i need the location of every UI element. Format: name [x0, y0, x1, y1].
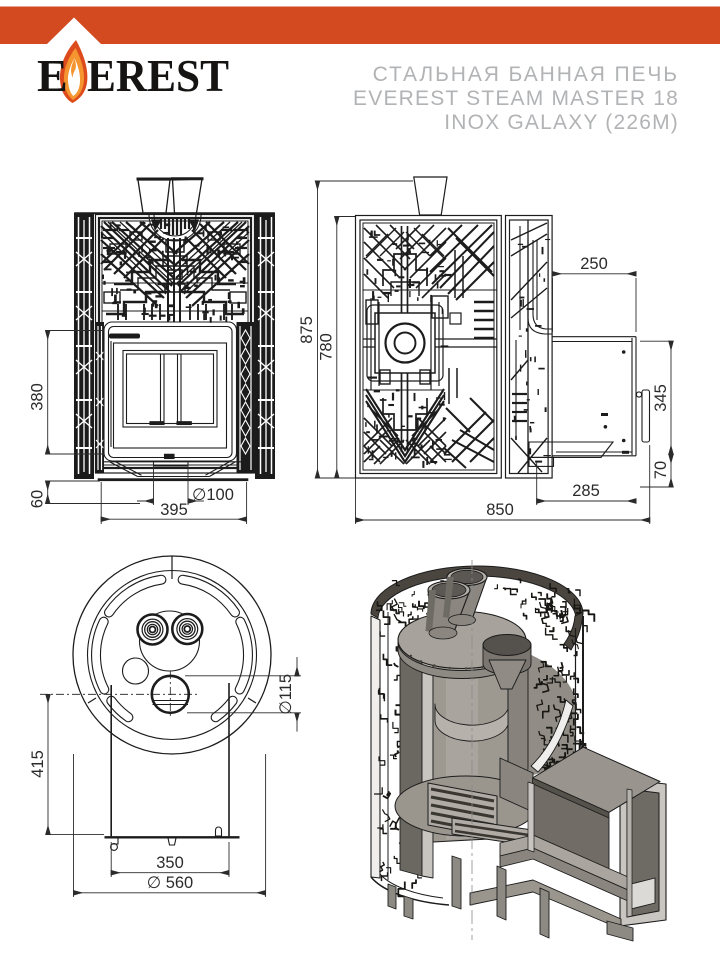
- svg-text:∅115: ∅115: [277, 674, 295, 715]
- svg-text:345: 345: [652, 384, 670, 412]
- svg-text:E: E: [37, 50, 68, 101]
- svg-text:70: 70: [652, 461, 670, 479]
- svg-text:380: 380: [29, 383, 47, 411]
- svg-text:∅100: ∅100: [192, 486, 234, 504]
- svg-text:EREST: EREST: [87, 50, 229, 101]
- svg-text:∅ 560: ∅ 560: [147, 874, 194, 892]
- svg-text:395: 395: [160, 501, 188, 519]
- svg-text:СТАЛЬНАЯ БАННАЯ ПЕЧЬ: СТАЛЬНАЯ БАННАЯ ПЕЧЬ: [373, 63, 679, 86]
- svg-text:875: 875: [298, 316, 316, 344]
- svg-text:350: 350: [156, 854, 184, 872]
- svg-text:780: 780: [318, 333, 336, 361]
- svg-text:415: 415: [29, 750, 47, 778]
- svg-text:250: 250: [580, 255, 608, 273]
- svg-text:60: 60: [29, 490, 47, 508]
- svg-text:850: 850: [486, 501, 514, 519]
- svg-text:INOX GALAXY (226М): INOX GALAXY (226М): [444, 111, 679, 134]
- svg-text:EVEREST STEAM MASTER 18: EVEREST STEAM MASTER 18: [353, 87, 679, 110]
- svg-text:285: 285: [572, 482, 600, 500]
